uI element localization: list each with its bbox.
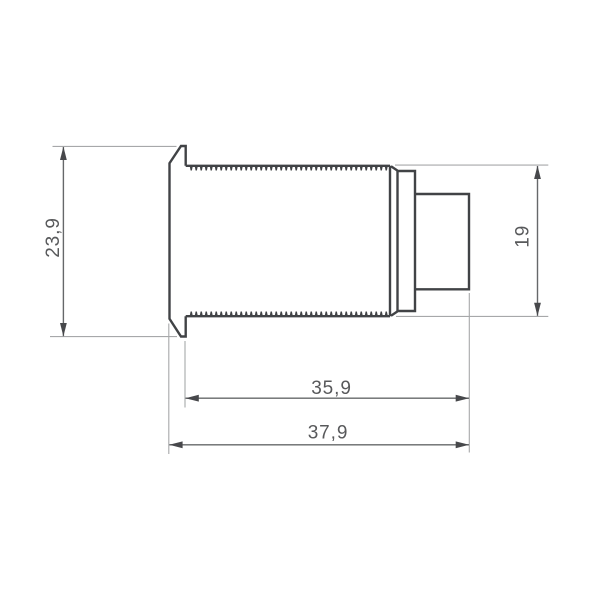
svg-text:23,9: 23,9 — [43, 217, 64, 258]
svg-text:35,9: 35,9 — [311, 378, 352, 399]
svg-text:19: 19 — [512, 225, 533, 248]
svg-text:37,9: 37,9 — [308, 422, 349, 443]
